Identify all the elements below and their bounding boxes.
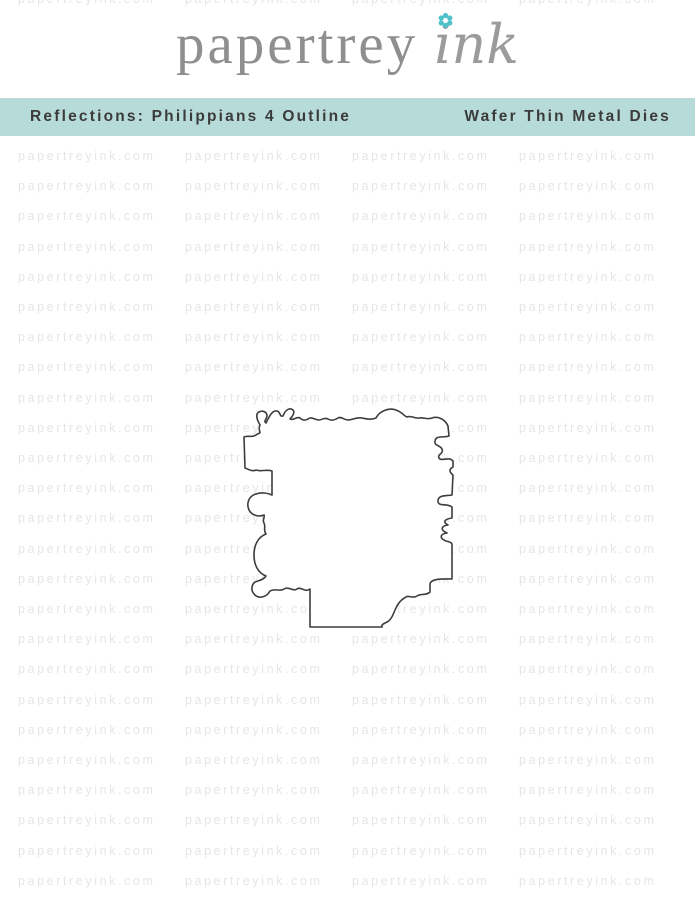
watermark-text: papertreyink.com (18, 150, 155, 163)
watermark-text: papertreyink.com (18, 241, 155, 254)
watermark-text: papertreyink.com (352, 361, 489, 374)
watermark-text: papertreyink.com (352, 331, 489, 344)
watermark-text: papertreyink.com (185, 271, 322, 284)
watermark-text: papertreyink.com (185, 0, 322, 6)
watermark-text: papertreyink.com (352, 633, 489, 646)
watermark-text: papertreyink.com (18, 512, 155, 525)
brand-name-papertrey: papertrey (176, 14, 418, 77)
watermark-text: papertreyink.com (185, 241, 322, 254)
watermark-text: papertreyink.com (519, 633, 656, 646)
watermark-text: papertreyink.com (519, 180, 656, 193)
watermark-text: papertreyink.com (18, 875, 155, 888)
watermark-text: papertreyink.com (185, 180, 322, 193)
watermark-text: papertreyink.com (352, 301, 489, 314)
watermark-text: papertreyink.com (185, 694, 322, 707)
watermark-text: papertreyink.com (352, 150, 489, 163)
watermark-text: papertreyink.com (519, 784, 656, 797)
watermark-text: papertreyink.com (185, 814, 322, 827)
watermark-text: papertreyink.com (18, 361, 155, 374)
watermark-text: papertreyink.com (519, 512, 656, 525)
watermark-text: papertreyink.com (519, 603, 656, 616)
watermark-text: papertreyink.com (519, 241, 656, 254)
watermark-text: papertreyink.com (18, 724, 155, 737)
watermark-text: papertreyink.com (519, 331, 656, 344)
watermark-text: papertreyink.com (185, 210, 322, 223)
die-outline-shape (230, 403, 462, 635)
brand-logo: papertrey ink (0, 14, 695, 77)
watermark-text: papertreyink.com (18, 784, 155, 797)
flower-icon (437, 12, 454, 29)
watermark-text: papertreyink.com (352, 814, 489, 827)
watermark-text: papertreyink.com (18, 573, 155, 586)
watermark-text: papertreyink.com (519, 694, 656, 707)
watermark-text: papertreyink.com (18, 633, 155, 646)
watermark-text: papertreyink.com (18, 754, 155, 767)
watermark-text: papertreyink.com (18, 271, 155, 284)
product-banner: Reflections: Philippians 4 Outline Wafer… (0, 98, 695, 136)
watermark-text: papertreyink.com (18, 422, 155, 435)
watermark-text: papertreyink.com (519, 845, 656, 858)
watermark-text: papertreyink.com (519, 392, 656, 405)
product-type: Wafer Thin Metal Dies (464, 108, 671, 126)
watermark-text: papertreyink.com (352, 180, 489, 193)
watermark-text: papertreyink.com (352, 271, 489, 284)
watermark-text: papertreyink.com (18, 331, 155, 344)
watermark-text: papertreyink.com (185, 150, 322, 163)
watermark-text: papertreyink.com (18, 180, 155, 193)
watermark-text: papertreyink.com (519, 482, 656, 495)
watermark-text: papertreyink.com (352, 845, 489, 858)
watermark-text: papertreyink.com (18, 603, 155, 616)
watermark-text: papertreyink.com (18, 392, 155, 405)
watermark-text: papertreyink.com (185, 845, 322, 858)
watermark-text: papertreyink.com (519, 663, 656, 676)
watermark-text: papertreyink.com (185, 784, 322, 797)
watermark-text: papertreyink.com (185, 754, 322, 767)
watermark-text: papertreyink.com (18, 452, 155, 465)
product-image: papertrey ink Reflections: Philippians 4… (0, 0, 695, 900)
watermark-text: papertreyink.com (18, 210, 155, 223)
watermark-text: papertreyink.com (519, 150, 656, 163)
watermark-text: papertreyink.com (519, 0, 656, 6)
watermark-text: papertreyink.com (352, 0, 489, 6)
watermark-text: papertreyink.com (352, 784, 489, 797)
watermark-text: papertreyink.com (519, 543, 656, 556)
watermark-text: papertreyink.com (352, 663, 489, 676)
product-title: Reflections: Philippians 4 Outline (30, 108, 351, 126)
watermark-text: papertreyink.com (185, 633, 322, 646)
watermark-text: papertreyink.com (519, 210, 656, 223)
watermark-text: papertreyink.com (352, 754, 489, 767)
watermark-text: papertreyink.com (18, 814, 155, 827)
watermark-text: papertreyink.com (352, 694, 489, 707)
watermark-text: papertreyink.com (519, 754, 656, 767)
watermark-text: papertreyink.com (18, 301, 155, 314)
watermark-text: papertreyink.com (18, 663, 155, 676)
watermark-text: papertreyink.com (519, 875, 656, 888)
watermark-text: papertreyink.com (18, 543, 155, 556)
watermark-text: papertreyink.com (519, 452, 656, 465)
watermark-text: papertreyink.com (352, 875, 489, 888)
watermark-text: papertreyink.com (519, 814, 656, 827)
watermark-text: papertreyink.com (18, 482, 155, 495)
watermark-text: papertreyink.com (185, 875, 322, 888)
watermark-text: papertreyink.com (519, 301, 656, 314)
watermark-text: papertreyink.com (519, 361, 656, 374)
watermark-text: papertreyink.com (185, 331, 322, 344)
watermark-text: papertreyink.com (18, 694, 155, 707)
watermark-text: papertreyink.com (18, 845, 155, 858)
watermark-text: papertreyink.com (519, 271, 656, 284)
watermark-text: papertreyink.com (352, 241, 489, 254)
watermark-text: papertreyink.com (185, 663, 322, 676)
watermark-text: papertreyink.com (519, 724, 656, 737)
watermark-text: papertreyink.com (352, 210, 489, 223)
watermark-text: papertreyink.com (519, 422, 656, 435)
watermark-text: papertreyink.com (18, 0, 155, 6)
brand-name-ink-wrap: ink (434, 15, 519, 74)
watermark-text: papertreyink.com (185, 301, 322, 314)
watermark-text: papertreyink.com (185, 724, 322, 737)
watermark-text: papertreyink.com (352, 724, 489, 737)
watermark-text: papertreyink.com (185, 361, 322, 374)
watermark-text: papertreyink.com (519, 573, 656, 586)
